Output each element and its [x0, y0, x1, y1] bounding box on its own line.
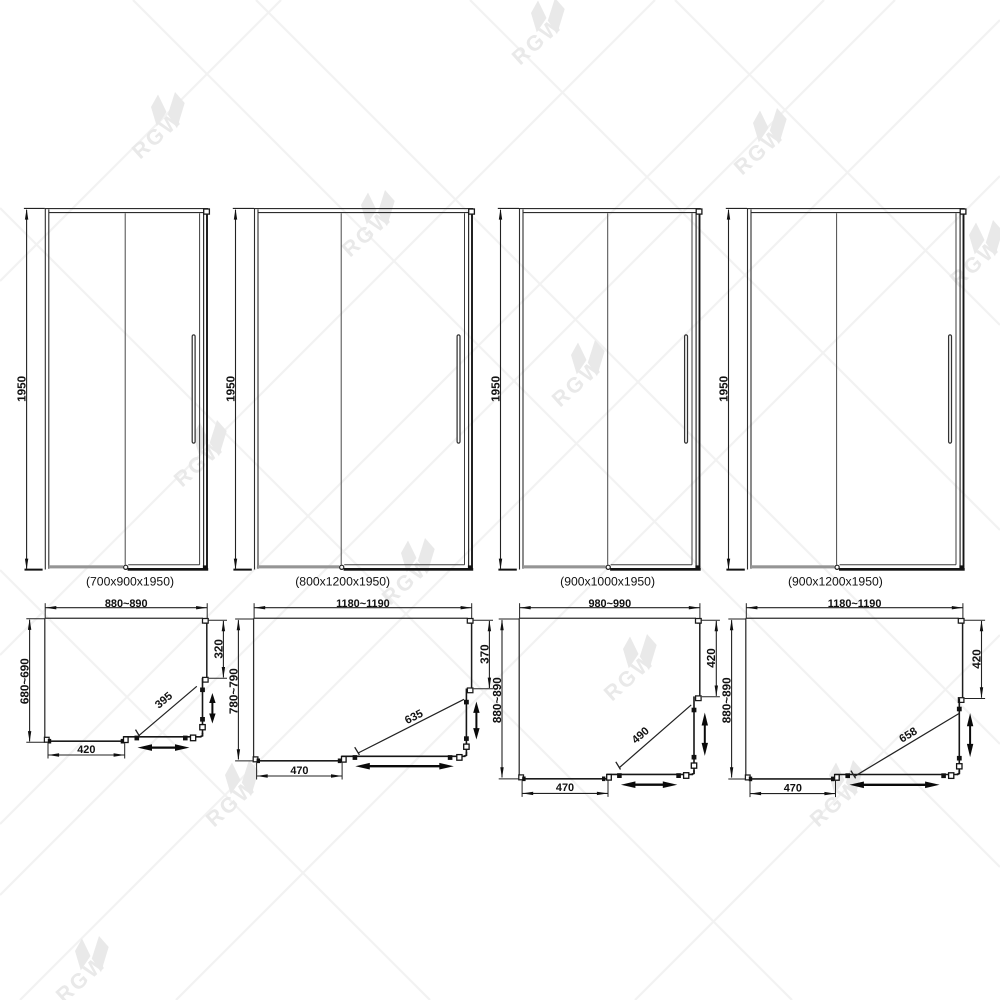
svg-text:880~890: 880~890	[491, 677, 504, 723]
svg-text:1950: 1950	[489, 375, 502, 402]
svg-text:1950: 1950	[16, 375, 29, 402]
svg-text:320: 320	[212, 639, 225, 659]
svg-text:1180~1190: 1180~1190	[828, 598, 882, 610]
svg-text:880~890: 880~890	[105, 598, 148, 610]
svg-text:470: 470	[290, 765, 308, 777]
svg-text:880~890: 880~890	[721, 677, 734, 723]
svg-text:(800x1200x1950): (800x1200x1950)	[295, 575, 390, 589]
svg-text:780~790: 780~790	[227, 668, 240, 714]
svg-text:420: 420	[77, 744, 95, 756]
svg-text:(900x1200x1950): (900x1200x1950)	[788, 575, 883, 589]
svg-text:680~690: 680~690	[19, 658, 32, 704]
svg-text:1950: 1950	[717, 375, 730, 402]
svg-text:(700x900x1950): (700x900x1950)	[86, 575, 174, 589]
svg-text:470: 470	[556, 782, 574, 794]
svg-text:420: 420	[970, 649, 983, 669]
svg-text:(900x1000x1950): (900x1000x1950)	[560, 575, 655, 589]
svg-text:1950: 1950	[224, 375, 237, 402]
svg-text:420: 420	[705, 648, 718, 668]
svg-text:1180~1190: 1180~1190	[336, 598, 390, 610]
svg-text:470: 470	[784, 782, 802, 794]
svg-text:980~990: 980~990	[588, 598, 631, 610]
svg-text:370: 370	[478, 644, 491, 664]
